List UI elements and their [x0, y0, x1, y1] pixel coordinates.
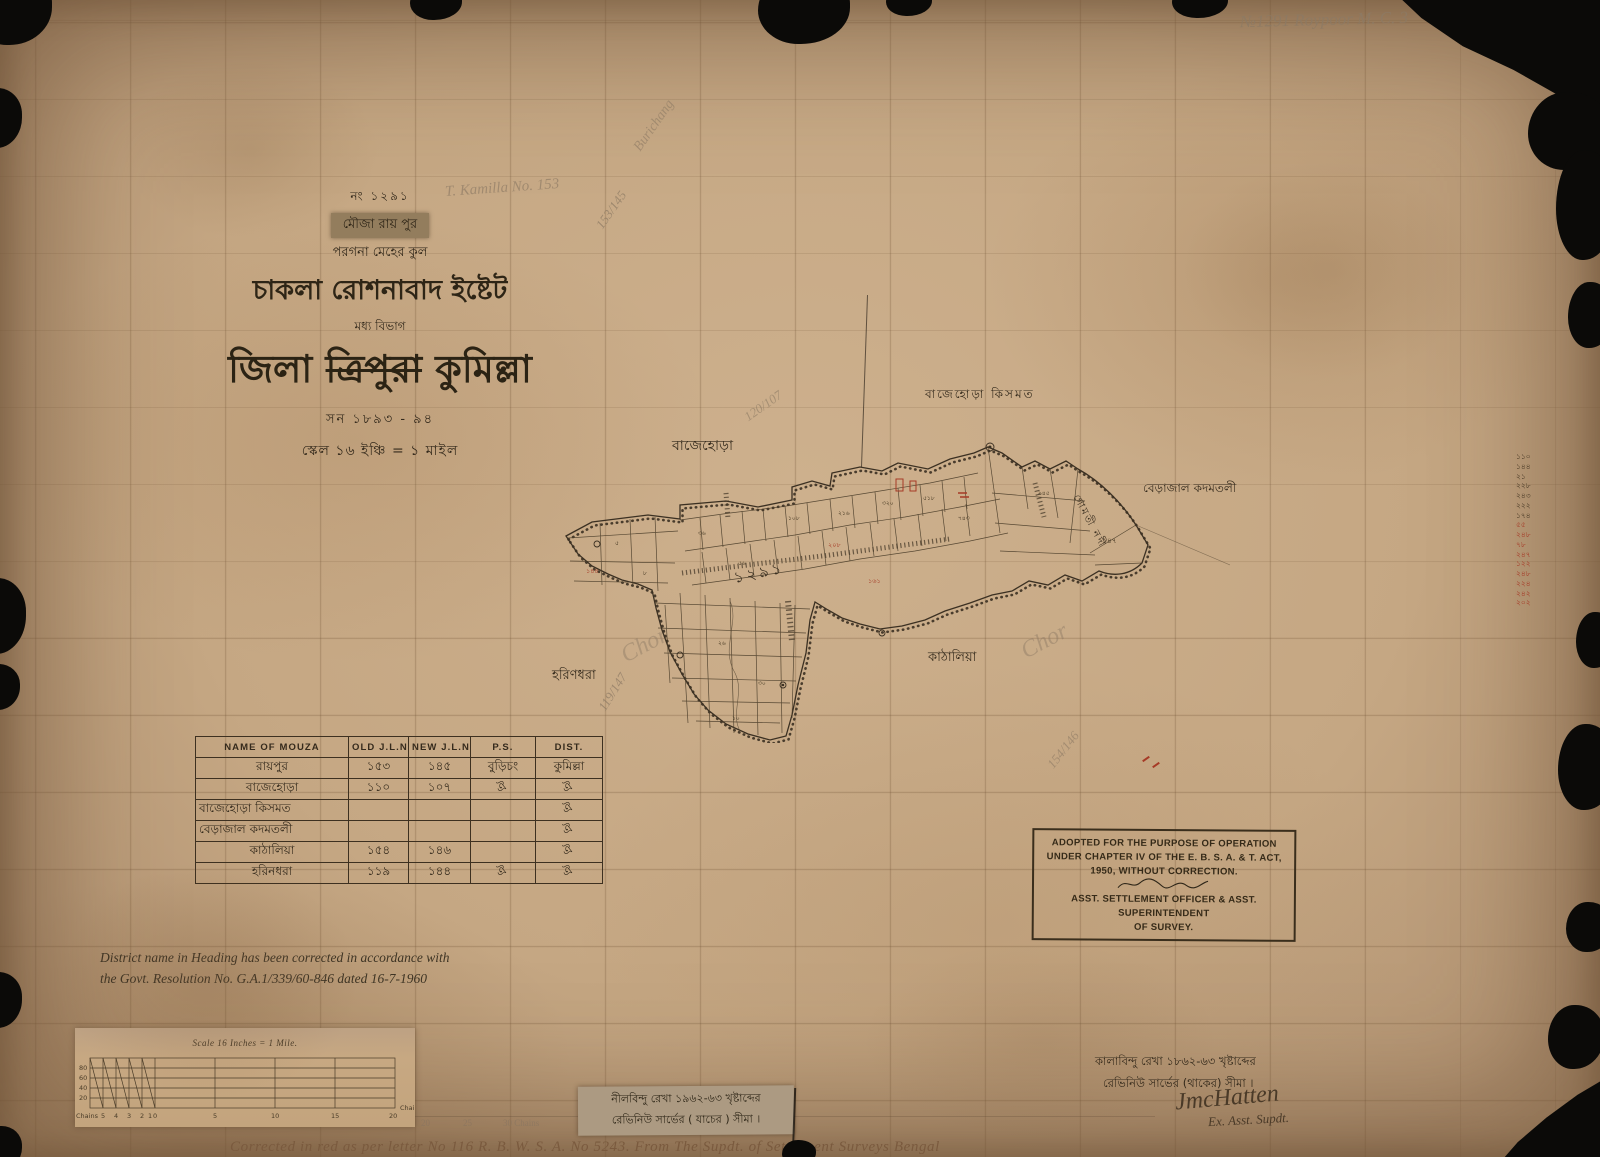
col-ps: P.S.	[471, 737, 536, 758]
legend-line-1: কালাবিন্দু রেখা ১৮৬২-৬৩ খৃষ্টাব্দের	[1095, 1053, 1256, 1072]
svg-text:20: 20	[79, 1094, 87, 1102]
svg-text:১০: ১০	[732, 715, 740, 722]
tear	[1496, 1072, 1600, 1157]
label-kathalia: কাঠালিয়া	[928, 648, 976, 669]
col-name: NAME OF MOUZA	[196, 737, 349, 758]
svg-text:৩০: ৩০	[758, 680, 766, 687]
district-struck: ত্রিপুরা	[326, 347, 423, 391]
stamp-line-1: ADOPTED FOR THE PURPOSE OF OPERATION	[1038, 836, 1290, 852]
tear	[0, 578, 26, 654]
svg-text:২১৬: ২১৬	[838, 510, 850, 517]
svg-text:3: 3	[127, 1112, 131, 1120]
age-stain	[860, 940, 1220, 1140]
scale-bar-panel: Scale 16 Inches = 1 Mile. 80 60 40 20 Ch…	[75, 1028, 415, 1127]
label-harindhara: হরিণধরা	[552, 666, 596, 687]
mouza-map-drawing: ১২৯১ ৫ ৮ ৩৬ ৫৬ ১০৮ ২১৬ ৩২০ ৫১৮ ৭৪৩ ৯৪৫ ১…	[530, 423, 1230, 743]
tear	[758, 0, 850, 44]
col-dist: DIST.	[536, 737, 603, 758]
svg-text:৭৪৩: ৭৪৩	[958, 515, 970, 522]
col-old: OLD J.L.NO	[349, 737, 409, 758]
district-correction-note: District name in Heading has been correc…	[100, 948, 450, 990]
svg-text:৫: ৫	[615, 540, 619, 547]
svg-text:2: 2	[140, 1112, 144, 1120]
label-bajehora-kismat: বাজেহোড়া কিসমত	[925, 386, 1035, 406]
tear	[1548, 1005, 1600, 1069]
pencil-fraction-bajehora: 120/107	[741, 387, 785, 425]
stamp-line-4: ASST. SETTLEMENT OFFICER & ASST. SUPERIN…	[1038, 892, 1290, 921]
stamp-signature	[1116, 876, 1212, 893]
table-row: রায়পুর ১৫৩ ১৪৫ বুড়িচং কুমিল্লা	[196, 758, 603, 779]
district-line: জিলা ত্রিপুরা কুমিল্লা	[160, 340, 600, 404]
tear	[0, 664, 20, 710]
district-new: কুমিল্লা	[435, 347, 532, 391]
tear	[1558, 724, 1600, 810]
svg-text:৫৬: ৫৬	[738, 560, 746, 567]
district-prefix: জিলা	[228, 347, 312, 391]
svg-text:4: 4	[114, 1112, 118, 1120]
stamp-line-2: UNDER CHAPTER IV OF THE E. B. S. A. & T.…	[1038, 850, 1290, 866]
svg-text:১৪৪: ১৪৪	[586, 567, 599, 575]
mouza-name-slip: মৌজা রায় পুর	[331, 213, 429, 238]
mouza-map: ১২৯১ ৫ ৮ ৩৬ ৫৬ ১০৮ ২১৬ ৩২০ ৫১৮ ৭৪৩ ৯৪৫ ১…	[530, 423, 1230, 743]
table-row: হরিনধরা ১১৯ ১৪৪ ঐ ঐ	[196, 863, 603, 884]
slip-line-2: রেভিনিউ সার্ভের ( যাচের ) সীমা ।	[578, 1110, 794, 1131]
svg-text:40: 40	[79, 1084, 87, 1092]
svg-text:0: 0	[153, 1112, 157, 1120]
title-block: নং ১২৯১ মৌজা রায় পুর পরগনা মেহের কুল চা…	[160, 188, 600, 463]
adoption-stamp: ADOPTED FOR THE PURPOSE OF OPERATION UND…	[1032, 828, 1297, 942]
tear	[0, 0, 52, 45]
svg-text:২০৮: ২০৮	[828, 541, 841, 549]
svg-text:60: 60	[79, 1074, 87, 1082]
slip-line-1: নীলবিন্দু রেখা ১৯৬২-৬৩ খৃষ্টাব্দের	[578, 1089, 794, 1110]
edge-number-column: ১১০১৪৪ ২১২২৮ ২৪৩২২২ ১৭৪৫৫ ২৪৮৭৮ ২৪৭১২২ ২…	[1516, 452, 1531, 608]
scale-bar-title: Scale 16 Inches = 1 Mile.	[75, 1028, 415, 1048]
col-new: NEW J.L.NO	[409, 737, 471, 758]
correction-note-line-1: District name in Heading has been correc…	[100, 948, 450, 969]
svg-text:৩৬: ৩৬	[698, 530, 706, 537]
svg-text:৫১৮: ৫১৮	[923, 495, 935, 502]
mouza-name: মৌজা রায় পুর	[343, 217, 417, 232]
svg-text:১৬১: ১৬১	[868, 577, 881, 585]
boundary-solid	[566, 447, 1148, 740]
stamp-line-5: OF SURVEY.	[1038, 920, 1290, 936]
table-row: কাঠালিয়া ১৫৪ ১৪৬ ঐ	[196, 842, 603, 863]
tear	[1172, 0, 1228, 18]
tear	[0, 88, 22, 148]
svg-text:80: 80	[79, 1064, 87, 1072]
pasted-legend-slip: নীলবিন্দু রেখা ১৯৬২-৬৩ খৃষ্টাব্দের রেভিন…	[578, 1085, 794, 1136]
parchment: নং ১২৯১ মৌজা রায় পুর পরগনা মেহের কুল চা…	[0, 0, 1600, 1157]
tear	[410, 0, 462, 20]
mouza-table: NAME OF MOUZA OLD J.L.NO NEW J.L.NO P.S.…	[195, 736, 603, 884]
diagonal-scale: 80 60 40 20 Chains 5 4 3 2 1 0 5 10 15 2…	[75, 1048, 415, 1126]
tear	[1568, 282, 1600, 348]
table-header-row: NAME OF MOUZA OLD J.L.NO NEW J.L.NO P.S.…	[196, 737, 603, 758]
svg-text:Chains: Chains	[76, 1112, 99, 1120]
tear	[782, 1140, 816, 1157]
red-correction-memo: Corrected in red as per letter No 116 R.…	[230, 1139, 1230, 1156]
tear	[0, 972, 22, 1028]
label-bajehora: বাজেহোড়া	[672, 434, 733, 458]
tear	[1566, 902, 1600, 952]
parcel-lines	[568, 447, 1230, 735]
table-row: বেড়াজাল কদমতলী ঐ	[196, 821, 603, 842]
scanned-map-sheet: নং ১২৯১ মৌজা রায় পুর পরগনা মেহের কুল চা…	[0, 0, 1600, 1157]
tear	[0, 1126, 22, 1157]
label-berajal: বেড়াজাল কদমতলী	[1143, 480, 1236, 500]
pencil-note-burichang: Burichang	[631, 97, 678, 155]
tear	[886, 0, 932, 16]
svg-text:২৬: ২৬	[718, 640, 726, 647]
svg-text:৯৪৫: ৯৪৫	[1038, 490, 1050, 497]
svg-text:Chains: Chains	[400, 1104, 415, 1112]
table-row: বাজেহোড়া ১১০ ১০৭ ঐ ঐ	[196, 779, 603, 800]
pencil-note-top-right: №1291 Roypoor M. C. 3	[1240, 8, 1409, 32]
svg-text:10: 10	[271, 1112, 279, 1120]
table-row: বাজেহোড়া কিসমত ঐ	[196, 800, 603, 821]
svg-text:5: 5	[101, 1112, 105, 1120]
red-check-mark	[1152, 762, 1160, 768]
svg-text:৩২০: ৩২০	[882, 500, 894, 507]
svg-text:৮: ৮	[643, 570, 647, 577]
division-name: মধ্য বিভাগ	[160, 318, 600, 338]
svg-text:20: 20	[389, 1112, 397, 1120]
estate-name: চাকলা রোশনাবাদ ইষ্টেট	[160, 270, 600, 315]
svg-text:1: 1	[148, 1112, 152, 1120]
examiner-title: Ex. Asst. Supdt.	[1208, 1110, 1290, 1130]
svg-text:15: 15	[331, 1112, 339, 1120]
red-check-mark	[1142, 756, 1150, 762]
tear	[1576, 612, 1600, 668]
correction-note-line-2: the Govt. Resolution No. G.A.1/339/60-84…	[100, 969, 450, 990]
svg-text:5: 5	[213, 1112, 217, 1120]
pargana-name: পরগনা মেহের কুল	[160, 243, 600, 264]
age-stain	[1180, 160, 1480, 380]
svg-text:১০৮: ১০৮	[788, 515, 800, 522]
